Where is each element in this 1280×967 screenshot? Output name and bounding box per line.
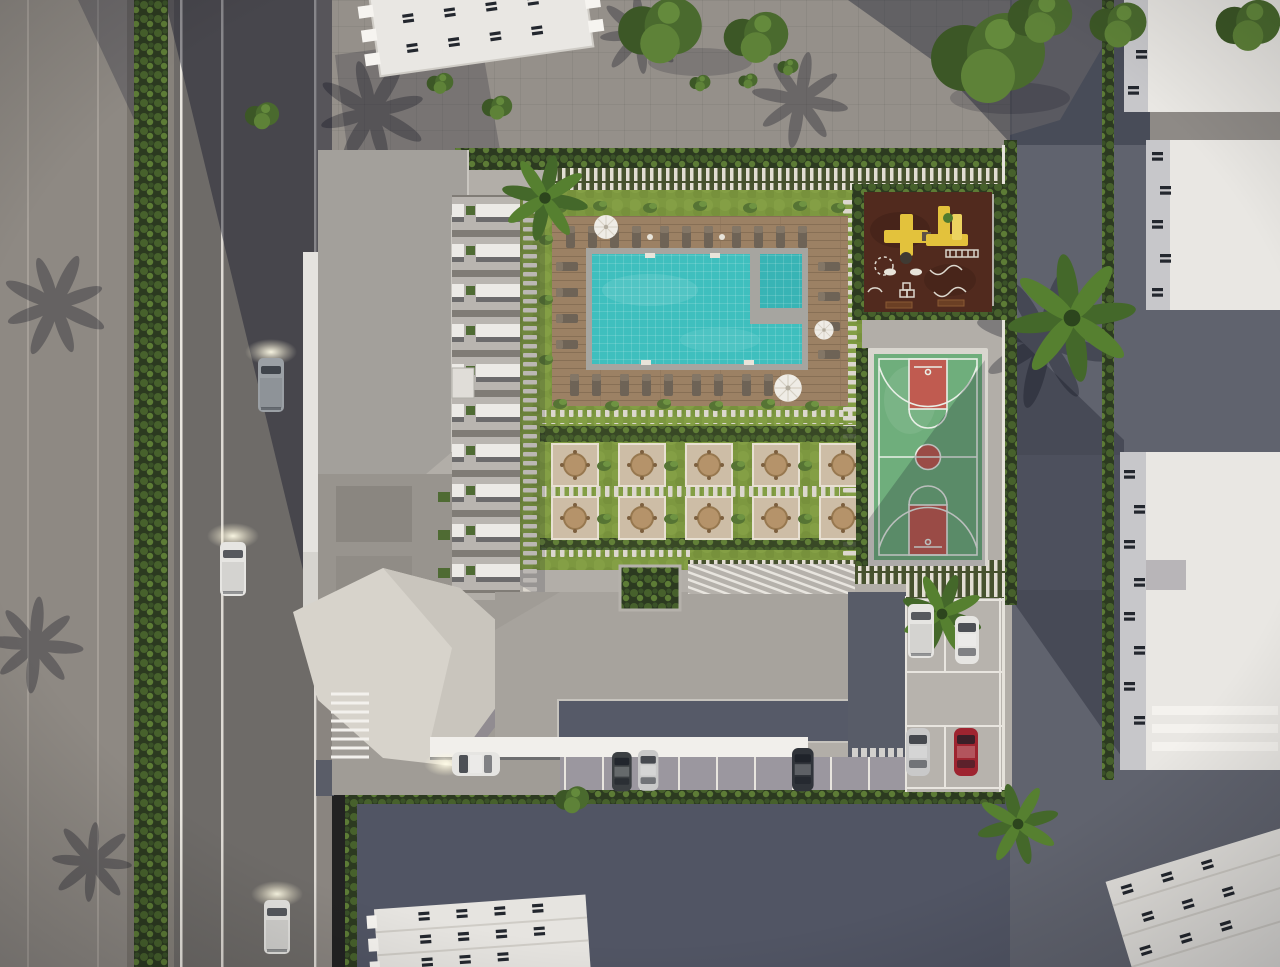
vignette [0,0,1280,967]
aerial-render: Aerial 3D render of residential complex … [0,0,1280,967]
